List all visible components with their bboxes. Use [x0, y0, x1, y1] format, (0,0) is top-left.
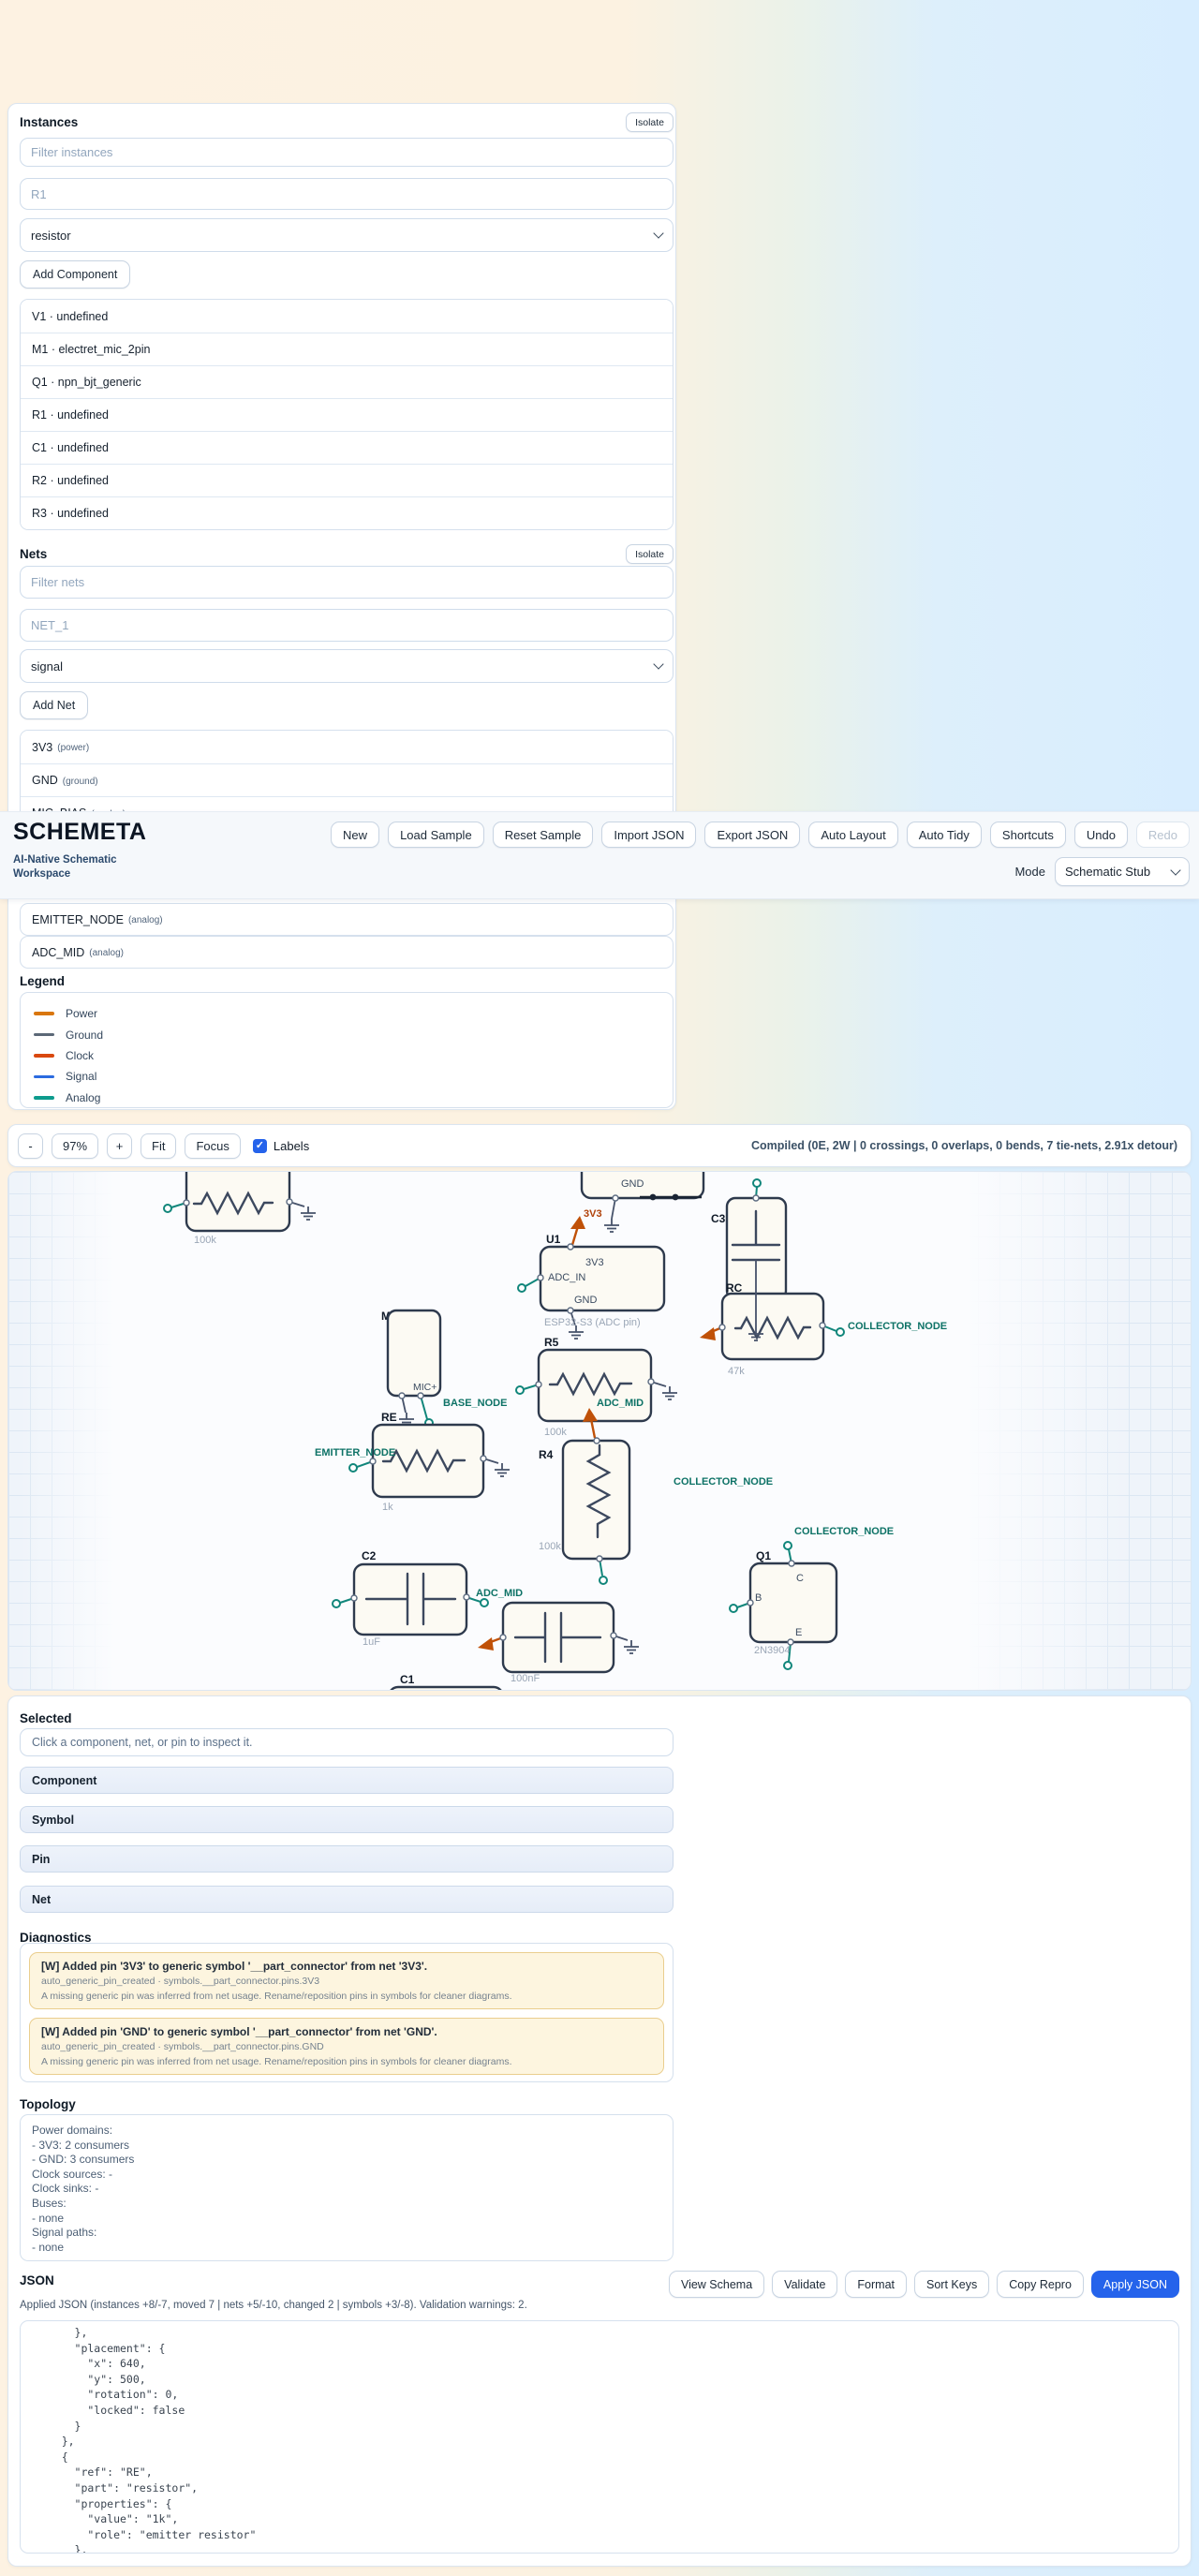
- net-kind: (analog): [128, 913, 163, 925]
- legend-swatch: [34, 1012, 54, 1015]
- view-schema-button[interactable]: View Schema: [669, 2271, 764, 2298]
- component-value: ESP32-S3 (ADC pin): [544, 1317, 641, 1328]
- topology-title: Topology: [20, 2097, 76, 2111]
- component-value: 100k: [539, 1541, 561, 1552]
- mode-label: Mode: [1014, 865, 1045, 879]
- focus-button[interactable]: Focus: [185, 1133, 240, 1159]
- legend-swatch: [34, 1075, 54, 1079]
- warning-description: A missing generic pin was inferred from …: [41, 1991, 652, 2003]
- instance-type-value: resistor: [31, 229, 71, 243]
- warning-description: A missing generic pin was inferred from …: [41, 2056, 652, 2068]
- warning-item: [W] Added pin '3V3' to generic symbol '_…: [29, 1952, 664, 2009]
- pin-label: 3V3: [585, 1257, 604, 1268]
- app-tagline-line2: Workspace: [13, 867, 117, 881]
- component-value: 100nF: [511, 1673, 540, 1684]
- section-pin[interactable]: Pin: [20, 1845, 674, 1873]
- legend-label: Signal: [66, 1070, 96, 1083]
- new-button[interactable]: New: [331, 822, 379, 848]
- net-label: EMITTER_NODE: [315, 1447, 395, 1458]
- inspector-panel: Selected Click a component, net, or pin …: [7, 1695, 1192, 2567]
- legend-item: Signal: [34, 1066, 659, 1087]
- component-value: 2N3904: [754, 1645, 791, 1656]
- redo-button[interactable]: Redo: [1136, 822, 1190, 848]
- legend-label: Ground: [66, 1029, 103, 1042]
- instances-isolate-button[interactable]: Isolate: [626, 112, 674, 132]
- nets-header: Nets Isolate: [20, 544, 674, 564]
- diagnostics-list: [W] Added pin '3V3' to generic symbol '_…: [20, 1943, 674, 2082]
- warning-title: [W] Added pin 'GND' to generic symbol '_…: [41, 2024, 652, 2039]
- app-tagline-line1: AI-Native Schematic: [13, 853, 117, 867]
- net-label: COLLECTOR_NODE: [848, 1321, 947, 1332]
- labels-toggle-label: Labels: [274, 1139, 309, 1153]
- component-ref: Q1: [756, 1549, 771, 1562]
- sidebar-panel: Instances Isolate resistor Add Component…: [7, 103, 676, 1110]
- section-symbol[interactable]: Symbol: [20, 1806, 674, 1833]
- app-tagline: AI-Native Schematic Workspace: [13, 853, 117, 881]
- net-row[interactable]: EMITTER_NODE (analog): [20, 903, 674, 936]
- net-name: EMITTER_NODE: [32, 913, 124, 926]
- net-label: COLLECTOR_NODE: [794, 1526, 894, 1537]
- net-kind: (ground): [63, 775, 98, 787]
- legend-swatch: [34, 1054, 54, 1058]
- copy-repro-button[interactable]: Copy Repro: [997, 2271, 1084, 2298]
- component-ref: R4: [539, 1448, 554, 1461]
- net-type-select[interactable]: signal: [20, 649, 674, 683]
- legend-item: Power: [34, 1003, 659, 1024]
- net-name: 3V3: [32, 741, 52, 754]
- instance-name-input[interactable]: [20, 178, 674, 210]
- json-editor[interactable]: }, "placement": { "x": 640, "y": 500, "r…: [20, 2320, 1179, 2554]
- warning-meta: auto_generic_pin_created · symbols.__par…: [41, 1976, 652, 1988]
- instance-row[interactable]: R1 · undefined: [21, 398, 673, 431]
- component-ref: C2: [362, 1549, 377, 1562]
- component-resistor-topleft[interactable]: 100k: [164, 1172, 316, 1246]
- component-value: 100k: [544, 1427, 567, 1438]
- component-ref: U1: [546, 1233, 561, 1246]
- legend-item: Analog: [34, 1088, 659, 1108]
- legend-label: Power: [66, 1007, 97, 1020]
- reset-sample-button[interactable]: Reset Sample: [493, 822, 594, 848]
- component-m1[interactable]: M1 MIC+: [381, 1310, 440, 1427]
- component-value: 100k: [194, 1235, 216, 1246]
- load-sample-button[interactable]: Load Sample: [388, 822, 484, 848]
- selected-title: Selected: [20, 1711, 72, 1725]
- net-name-input[interactable]: [20, 609, 674, 642]
- selected-hint: Click a component, net, or pin to inspec…: [20, 1728, 674, 1756]
- component-cap-100nf[interactable]: ADC_MID 100nF: [476, 1588, 639, 1684]
- component-c3[interactable]: C3: [711, 1179, 786, 1299]
- component-c2[interactable]: C2 1uF: [333, 1549, 488, 1648]
- pin-label: E: [795, 1627, 802, 1638]
- component-ref: C1: [400, 1673, 415, 1686]
- instance-row[interactable]: R3 · undefined: [21, 496, 673, 529]
- apply-json-button[interactable]: Apply JSON: [1091, 2271, 1179, 2298]
- json-code[interactable]: }, "placement": { "x": 640, "y": 500, "r…: [21, 2321, 1178, 2554]
- chevron-down-icon: [653, 659, 663, 669]
- app-header: SCHEMETA AI-Native Schematic Workspace N…: [0, 811, 1199, 899]
- validate-button[interactable]: Validate: [772, 2271, 837, 2298]
- labels-toggle[interactable]: ✓ Labels: [253, 1139, 309, 1153]
- net-label-3v3: 3V3: [584, 1208, 602, 1220]
- component-ref: RE: [381, 1411, 397, 1424]
- pin-label: MIC+: [413, 1382, 437, 1393]
- pin-label: ADC_IN: [548, 1272, 585, 1283]
- legend-swatch: [34, 1096, 54, 1100]
- topology-box: Power domains: - 3V3: 2 consumers - GND:…: [20, 2114, 674, 2261]
- nets-title: Nets: [20, 547, 47, 561]
- zoom-out-button[interactable]: -: [18, 1133, 43, 1159]
- canvas-toolbar: - 97% + Fit Focus ✓ Labels Compiled (0E,…: [7, 1124, 1192, 1167]
- legend-item: Clock: [34, 1045, 659, 1066]
- zoom-in-button[interactable]: +: [107, 1133, 132, 1159]
- mode-value: Schematic Stub: [1065, 865, 1150, 879]
- warning-item: [W] Added pin 'GND' to generic symbol '_…: [29, 2018, 664, 2075]
- instance-row[interactable]: M1 · electret_mic_2pin: [21, 333, 673, 365]
- schematic-canvas[interactable]: 100k GND 3V3 U1 3V3 AD: [7, 1171, 1192, 1691]
- auto-layout-button[interactable]: Auto Layout: [808, 822, 897, 848]
- mode-row: Mode Schematic Stub: [1014, 857, 1190, 886]
- legend-swatch: [34, 1033, 54, 1037]
- json-status: Applied JSON (instances +8/-7, moved 7 |…: [20, 2300, 527, 2311]
- power-arrow-3v3: 3V3: [570, 1208, 602, 1245]
- json-title: JSON: [20, 2273, 54, 2287]
- nets-filter-input[interactable]: [20, 566, 674, 599]
- checkbox-checked-icon[interactable]: ✓: [253, 1139, 267, 1153]
- pin-label: GND: [574, 1295, 598, 1306]
- section-net[interactable]: Net: [20, 1886, 674, 1913]
- add-component-button[interactable]: Add Component: [20, 260, 130, 289]
- instance-row[interactable]: V1 · undefined: [21, 300, 673, 333]
- compile-status: Compiled (0E, 2W | 0 crossings, 0 overla…: [751, 1139, 1181, 1152]
- component-ref: C3: [711, 1212, 726, 1225]
- fit-button[interactable]: Fit: [141, 1133, 176, 1159]
- add-net-button[interactable]: Add Net: [20, 691, 88, 719]
- legend-box: Power Ground Clock Signal Analog: [20, 992, 674, 1108]
- net-kind: (analog): [89, 946, 124, 958]
- pin-label: GND: [621, 1178, 644, 1190]
- component-ref: R5: [544, 1336, 559, 1349]
- component-c1[interactable]: C1: [389, 1673, 503, 1691]
- nets-isolate-button[interactable]: Isolate: [626, 544, 674, 564]
- instance-type-select[interactable]: resistor: [20, 218, 674, 252]
- legend-label: Clock: [66, 1049, 94, 1062]
- import-json-button[interactable]: Import JSON: [601, 822, 696, 848]
- legend-label: Analog: [66, 1091, 100, 1104]
- pin-label: C: [796, 1573, 804, 1584]
- header-toolbar: New Load Sample Reset Sample Import JSON…: [331, 822, 1190, 848]
- component-value: 47k: [728, 1366, 745, 1377]
- instances-list: V1 · undefined M1 · electret_mic_2pin Q1…: [20, 299, 674, 530]
- component-value: 1uF: [363, 1636, 380, 1648]
- component-power-connector[interactable]: GND: [582, 1172, 703, 1232]
- instance-row[interactable]: R2 · undefined: [21, 464, 673, 496]
- warning-title: [W] Added pin '3V3' to generic symbol '_…: [41, 1959, 652, 1974]
- instances-filter-input[interactable]: [20, 138, 674, 167]
- auto-tidy-button[interactable]: Auto Tidy: [907, 822, 982, 848]
- format-button[interactable]: Format: [845, 2271, 907, 2298]
- section-component[interactable]: Component: [20, 1767, 674, 1794]
- component-u1[interactable]: U1 3V3 ADC_IN GND ESP32-S3 (ADC pin): [518, 1233, 664, 1339]
- instance-row[interactable]: C1 · undefined: [21, 431, 673, 464]
- net-type-value: signal: [31, 659, 63, 674]
- json-toolbar: View Schema Validate Format Sort Keys Co…: [669, 2271, 1179, 2298]
- net-label: ADC_MID: [476, 1588, 523, 1599]
- net-row[interactable]: 3V3 (power): [21, 731, 673, 763]
- component-rc[interactable]: RC COLLECTOR_NODE 47k: [700, 1281, 947, 1377]
- component-value: 1k: [382, 1502, 393, 1513]
- mode-select[interactable]: Schematic Stub: [1055, 857, 1190, 886]
- component-r5[interactable]: R5 BASE_NODE ADC_MID 100k: [443, 1336, 677, 1438]
- export-json-button[interactable]: Export JSON: [704, 822, 800, 848]
- net-label: ADC_MID: [597, 1398, 644, 1409]
- pin-label: B: [755, 1592, 762, 1604]
- app-logo: SCHEMETA: [13, 819, 146, 846]
- legend-item: Ground: [34, 1024, 659, 1044]
- net-kind: (power): [57, 741, 89, 753]
- component-re[interactable]: RE EMITTER_NODE 1k: [315, 1411, 510, 1513]
- zoom-level-button[interactable]: 97%: [52, 1133, 98, 1159]
- schemeta-app: Instances Isolate resistor Add Component…: [0, 0, 1199, 2576]
- topology-text: Power domains: - 3V3: 2 consumers - GND:…: [32, 2124, 661, 2255]
- instances-header: Instances Isolate: [20, 112, 674, 132]
- net-label: COLLECTOR_NODE: [674, 1476, 773, 1488]
- instances-title: Instances: [20, 115, 78, 129]
- chevron-down-icon: [1170, 865, 1180, 875]
- sort-keys-button[interactable]: Sort Keys: [914, 2271, 989, 2298]
- legend-title: Legend: [20, 974, 65, 988]
- shortcuts-button[interactable]: Shortcuts: [990, 822, 1066, 848]
- chevron-down-icon: [653, 228, 663, 238]
- net-row[interactable]: ADC_MID (analog): [20, 936, 674, 969]
- instance-row[interactable]: Q1 · npn_bjt_generic: [21, 365, 673, 398]
- net-name: ADC_MID: [32, 946, 84, 959]
- schematic-svg: 100k GND 3V3 U1 3V3 AD: [8, 1172, 1192, 1691]
- net-row[interactable]: GND (ground): [21, 763, 673, 796]
- net-label: BASE_NODE: [443, 1398, 507, 1409]
- net-name: GND: [32, 774, 58, 787]
- component-q1[interactable]: COLLECTOR_NODE Q1 C B E 2N3904: [730, 1526, 894, 1669]
- warning-meta: auto_generic_pin_created · symbols.__par…: [41, 2041, 652, 2053]
- undo-button[interactable]: Undo: [1074, 822, 1128, 848]
